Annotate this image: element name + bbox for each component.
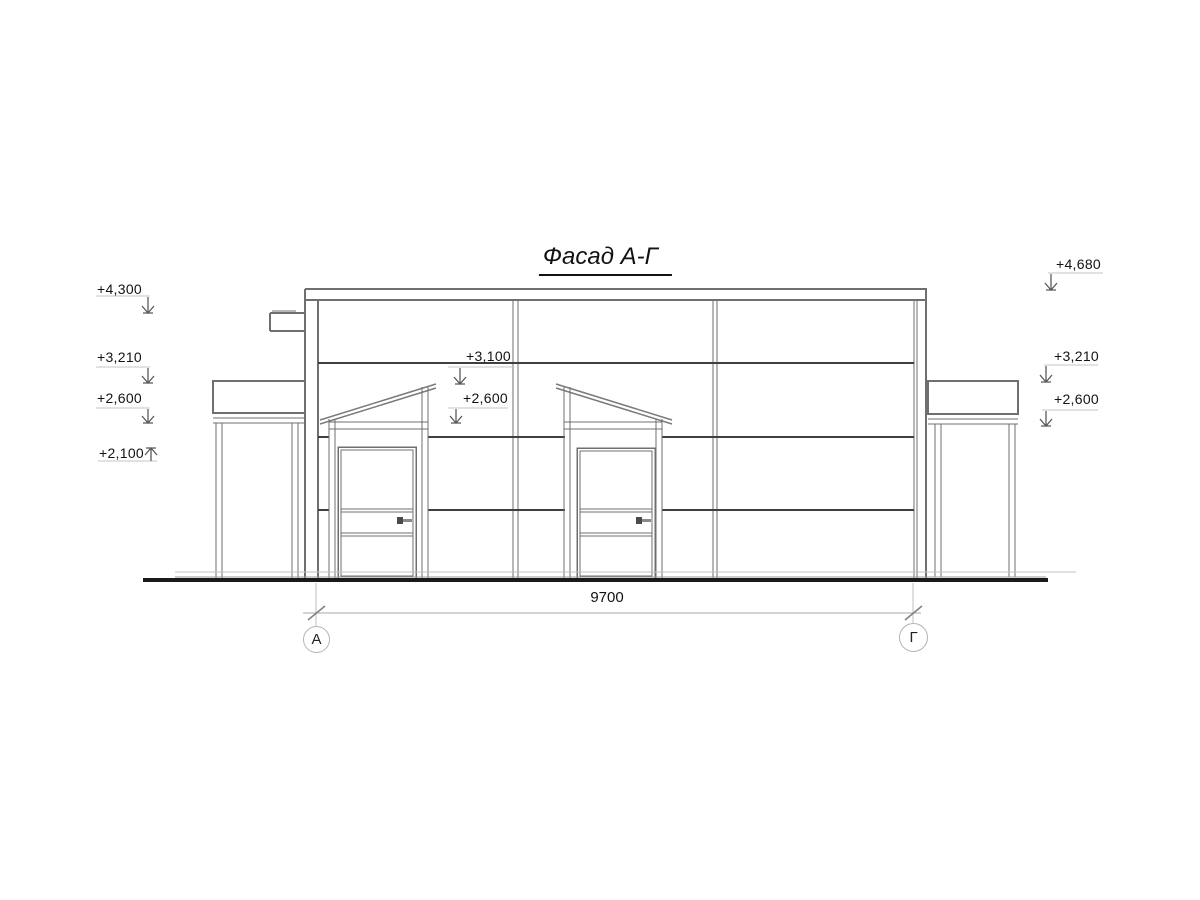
- elevation-label-left-2600: +2,600: [97, 390, 142, 406]
- axis-letter-a: А: [311, 631, 321, 648]
- left-wing: [213, 381, 305, 578]
- door-1-handle: [397, 517, 412, 524]
- dimension-text: 9700: [590, 589, 623, 606]
- door-1-canopy: [320, 384, 436, 424]
- drawing-title: Фасад А-Г: [539, 243, 672, 276]
- elevation-arrow-icon: [142, 274, 1057, 426]
- door-1-leaf: [338, 447, 416, 579]
- axis-bubble-g: Г: [899, 623, 928, 652]
- elevation-label-right-2600: +2,600: [1054, 391, 1099, 407]
- elevation-label-center-2600: +2,600: [463, 390, 508, 406]
- right-wing: [928, 381, 1018, 577]
- chimney-box: [270, 311, 305, 331]
- elevation-mark-symbols: [96, 273, 1103, 461]
- elevation-arrow-up-icon: [145, 448, 157, 461]
- door-2-canopy: [556, 384, 672, 424]
- door-2-leaf: [577, 448, 655, 579]
- parapet-band: [305, 289, 927, 300]
- axis-bubble-a: А: [303, 626, 330, 653]
- door-2-handle: [636, 517, 651, 524]
- building-columns: [305, 289, 926, 581]
- facade-panel-lines: [318, 363, 914, 510]
- elevation-label-left-2100: +2,100: [99, 445, 144, 461]
- facade-drawing-canvas: Фасад А-Г +4,300 +3,210 +2,600 +2,100 +3…: [0, 0, 1200, 900]
- elevation-label-left-3210: +3,210: [97, 349, 142, 365]
- elevation-label-left-4300: +4,300: [97, 281, 142, 297]
- facade-linework: [0, 0, 1200, 900]
- elevation-label-center-3100: +3,100: [466, 348, 511, 364]
- axis-letter-g: Г: [909, 629, 917, 646]
- elevation-label-right-4680: +4,680: [1056, 256, 1101, 272]
- elevation-label-right-3210: +3,210: [1054, 348, 1099, 364]
